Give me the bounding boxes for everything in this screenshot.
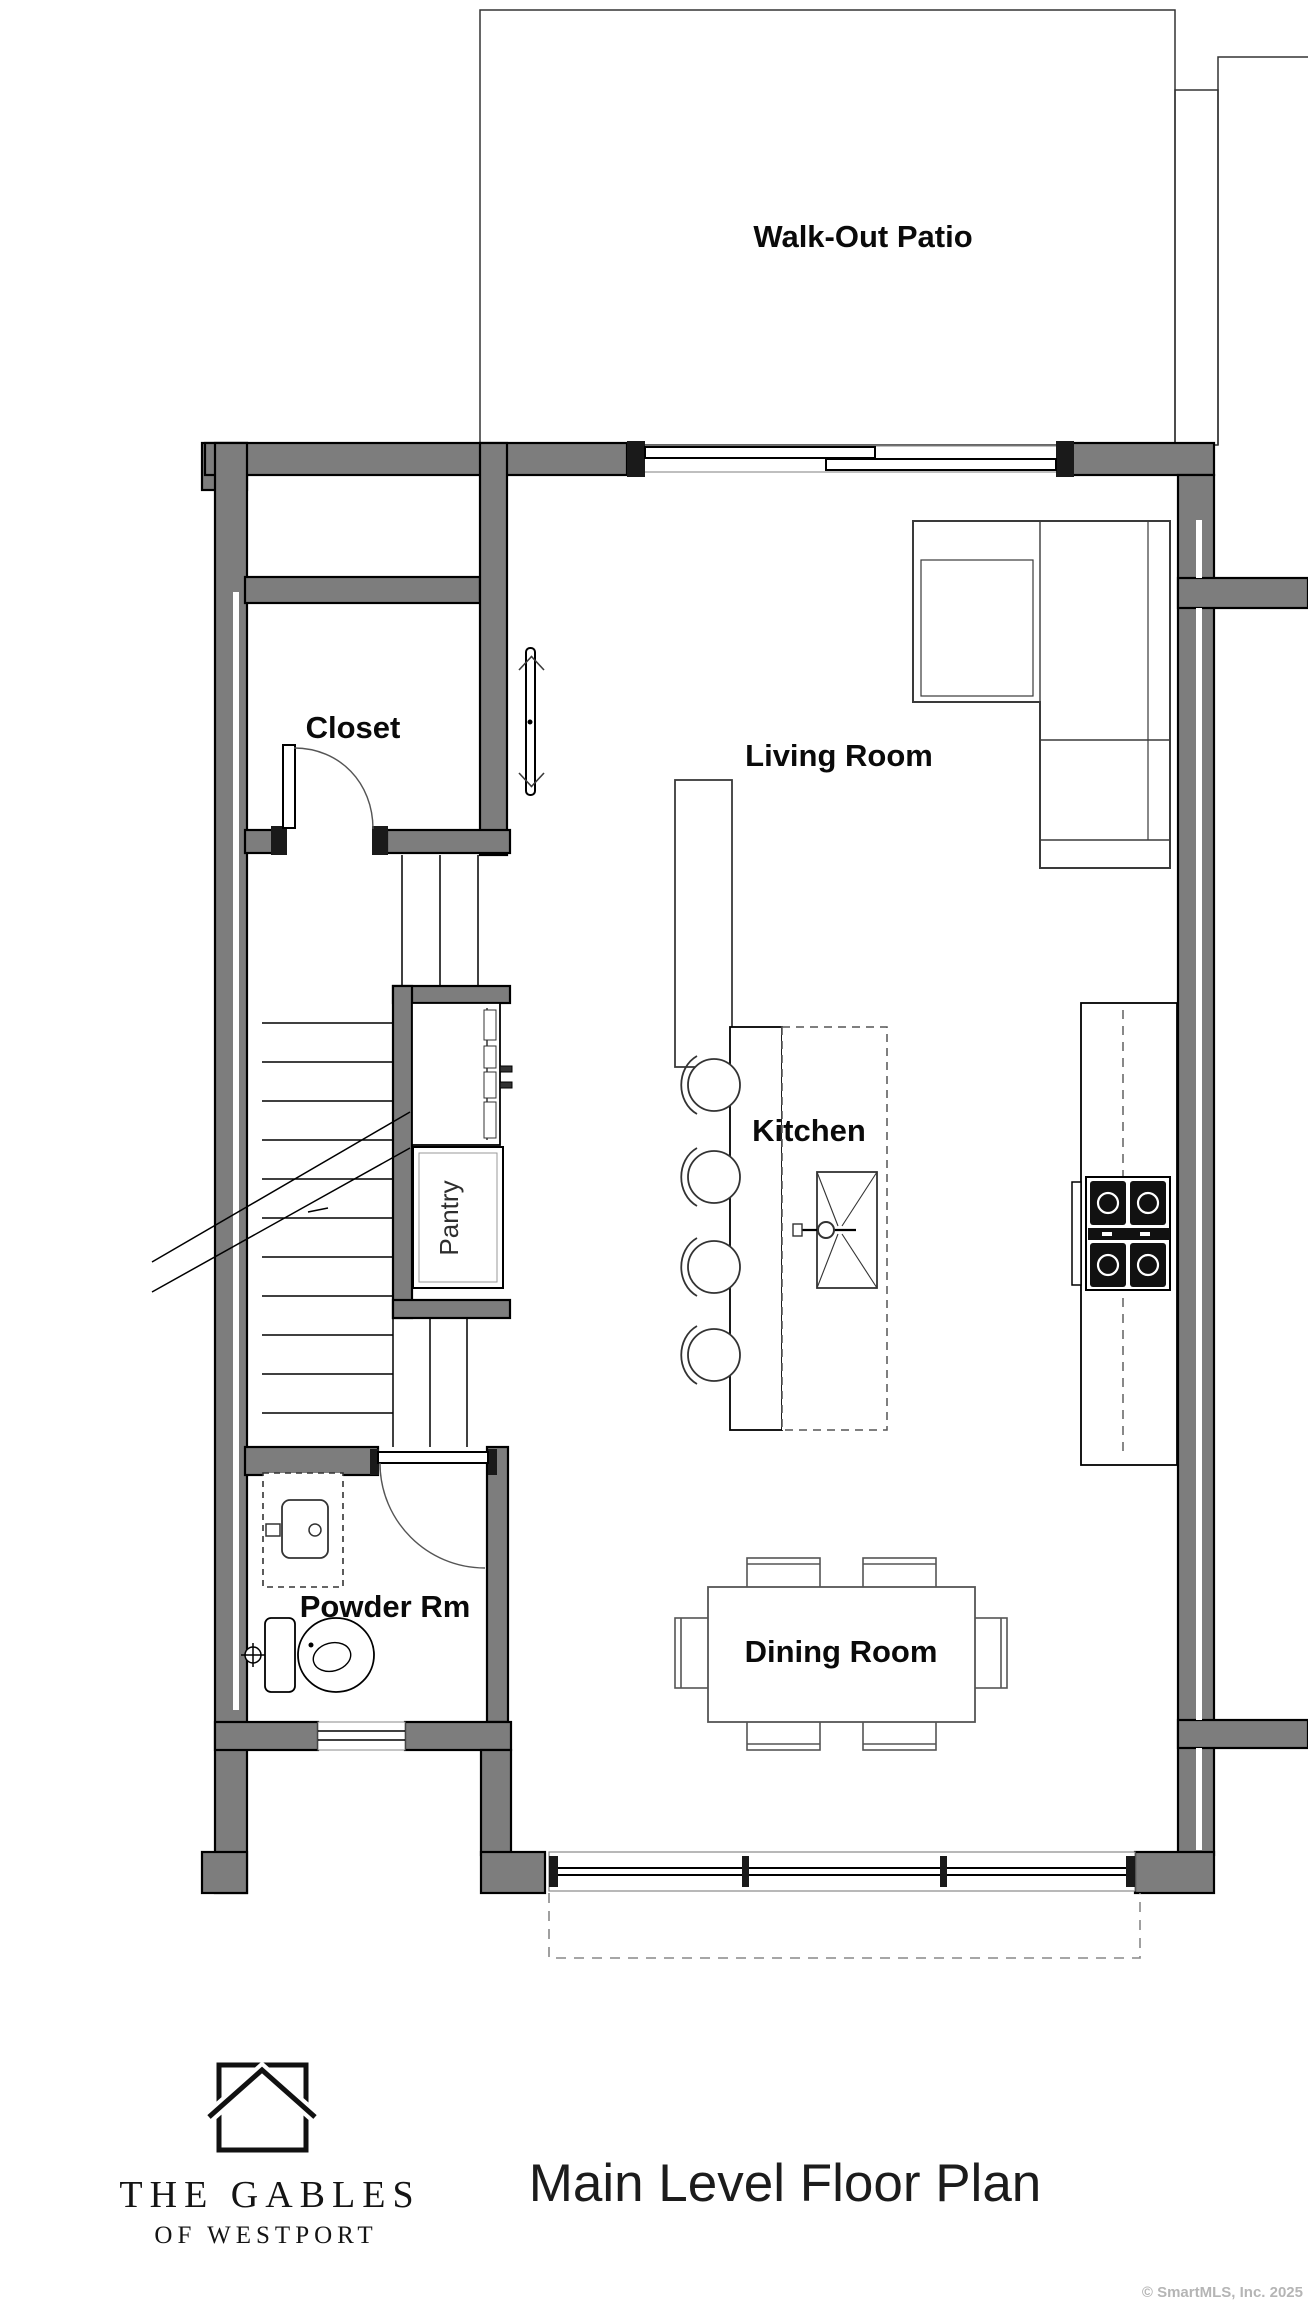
footer: THE GABLES OF WESTPORT Main Level Floor … xyxy=(119,2065,1303,2301)
floor-plan-page: Walk-Out Patio Living Room Closet Kitche… xyxy=(0,0,1308,2304)
bar-stool xyxy=(688,1059,740,1111)
neighbor-wall-strip xyxy=(1175,90,1218,445)
tv-mount-dot xyxy=(528,720,533,725)
sliding-panel-right xyxy=(826,459,1056,470)
party-wall-gap-right-c xyxy=(1196,1748,1202,1850)
sink-faucet xyxy=(818,1222,834,1238)
powder-door-jamb-right xyxy=(488,1449,497,1475)
bar-stool xyxy=(688,1241,740,1293)
range-handle xyxy=(1072,1182,1081,1285)
brand-name: THE GABLES xyxy=(119,2174,420,2216)
floor-plan-drawing: Walk-Out Patio Living Room Closet Kitche… xyxy=(0,0,1308,2304)
fridge-handle xyxy=(500,1066,512,1072)
closet-door-leaf xyxy=(283,745,295,828)
fridge xyxy=(412,1003,512,1145)
label-pantry: Pantry xyxy=(434,1180,464,1255)
wall-closet-bottom-left xyxy=(245,830,273,853)
wall-closet-right xyxy=(480,443,507,855)
party-wall-gap-right-b xyxy=(1196,608,1202,1720)
vanity-drain xyxy=(309,1524,321,1536)
party-wall-gap-left xyxy=(233,592,239,1710)
closet-door xyxy=(271,745,388,855)
stair-break-line-lower xyxy=(152,1148,410,1292)
window-frame xyxy=(549,1852,1135,1891)
vanity-faucet xyxy=(266,1524,280,1536)
range-control-band xyxy=(1088,1228,1170,1240)
wall-left xyxy=(215,443,247,1893)
label-closet: Closet xyxy=(306,710,401,745)
window-mullion xyxy=(742,1856,749,1887)
stair-break-line-upper xyxy=(152,1112,410,1262)
wall-pantry-bottom xyxy=(393,1300,510,1318)
sink-faucet-base xyxy=(793,1224,802,1236)
wall-powder-top xyxy=(245,1447,378,1475)
window-mullion xyxy=(940,1856,947,1887)
living-room-furniture xyxy=(675,521,1170,1067)
party-wall-gap-right-a xyxy=(1196,520,1202,578)
wall-tv xyxy=(519,648,544,795)
closet-door-jamb-left xyxy=(271,826,287,855)
closet-door-swing xyxy=(294,748,373,829)
label-powder-rm: Powder Rm xyxy=(300,1589,471,1624)
sectional-sofa xyxy=(913,521,1170,868)
label-kitchen: Kitchen xyxy=(752,1113,866,1148)
toilet-bolt xyxy=(309,1643,314,1648)
closet-door-jamb-right xyxy=(372,826,388,855)
label-living-room: Living Room xyxy=(745,738,933,773)
neighbor-boundary-line xyxy=(1218,57,1308,445)
door-jamb-right xyxy=(1056,441,1074,477)
wall-entry-step-foot xyxy=(481,1852,545,1893)
brand-tagline: OF WESTPORT xyxy=(154,2222,377,2249)
bar-stool xyxy=(688,1329,740,1381)
wall-top-right xyxy=(1066,443,1214,475)
wall-right-jog-upper xyxy=(1178,578,1308,608)
door-jamb-left xyxy=(627,441,645,477)
coffee-table xyxy=(675,780,732,1067)
wall-bottom-right-corner xyxy=(1135,1852,1214,1893)
wall-right-jog-lower xyxy=(1178,1720,1308,1748)
wall-entry-step xyxy=(481,1750,511,1855)
fridge-handle xyxy=(500,1082,512,1088)
wall-powder-right xyxy=(487,1447,508,1722)
label-walkout-patio: Walk-Out Patio xyxy=(753,219,972,254)
stair-break-tick xyxy=(308,1208,328,1212)
wall-closet-top xyxy=(245,577,480,603)
wall-bottom-left-corner xyxy=(202,1852,247,1893)
rear-window-band xyxy=(549,1852,1140,1958)
wall-powder-bottom-left xyxy=(215,1722,318,1750)
powder-door-leaf xyxy=(378,1452,488,1463)
wall-top-left xyxy=(205,443,627,475)
stoop-dashed-outline xyxy=(549,1893,1140,1958)
kitchen-island xyxy=(730,1027,887,1430)
sliding-panel-left xyxy=(645,447,875,458)
window-jamb xyxy=(1126,1856,1135,1887)
powder-window xyxy=(318,1722,405,1750)
gables-logo-icon xyxy=(209,2065,315,2150)
toilet-tank xyxy=(265,1618,295,1692)
patio-sliding-door xyxy=(627,441,1074,477)
toilet-bowl xyxy=(298,1618,374,1692)
kitchen-counter xyxy=(1072,1003,1177,1465)
bar-stool xyxy=(688,1151,740,1203)
wall-powder-bottom-right xyxy=(405,1722,511,1750)
label-dining-room: Dining Room xyxy=(745,1634,938,1669)
window-jamb xyxy=(549,1856,558,1887)
logo-roof-casing xyxy=(209,2070,315,2117)
powder-door-swing xyxy=(380,1463,485,1568)
plan-title: Main Level Floor Plan xyxy=(529,2154,1042,2213)
copyright-text: © SmartMLS, Inc. 2025 xyxy=(1142,2284,1303,2301)
wall-closet-bottom-right xyxy=(387,830,510,853)
